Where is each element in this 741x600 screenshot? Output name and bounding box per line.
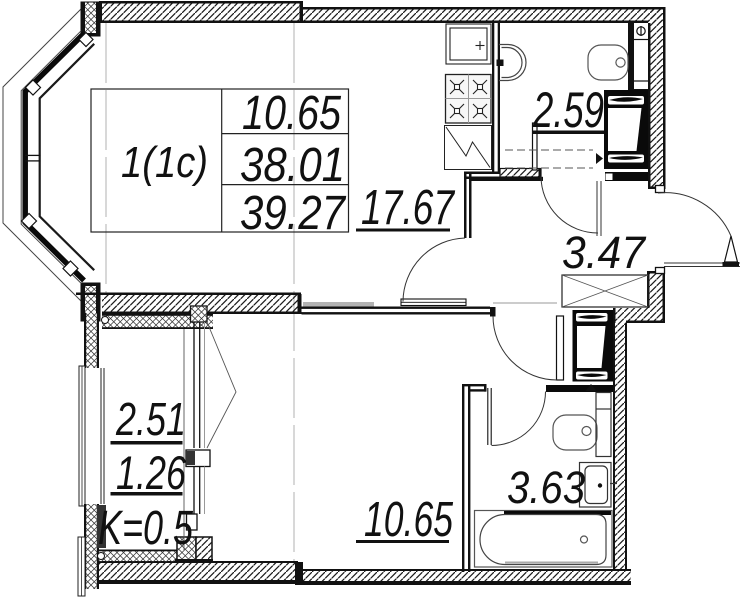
svg-text:10.65: 10.65 <box>242 87 341 140</box>
svg-text:2.51: 2.51 <box>115 393 186 445</box>
svg-text:1.26: 1.26 <box>116 446 187 499</box>
svg-text:K=0.5: K=0.5 <box>98 502 193 555</box>
svg-text:17.67: 17.67 <box>361 181 455 235</box>
svg-text:10.65: 10.65 <box>364 493 454 547</box>
svg-text:39.27: 39.27 <box>240 187 347 240</box>
svg-text:2.59: 2.59 <box>532 82 604 138</box>
svg-text:1(1c): 1(1c) <box>121 138 208 187</box>
svg-text:38.01: 38.01 <box>240 139 345 192</box>
svg-text:3.63: 3.63 <box>507 462 585 513</box>
svg-text:3.47: 3.47 <box>562 227 647 278</box>
